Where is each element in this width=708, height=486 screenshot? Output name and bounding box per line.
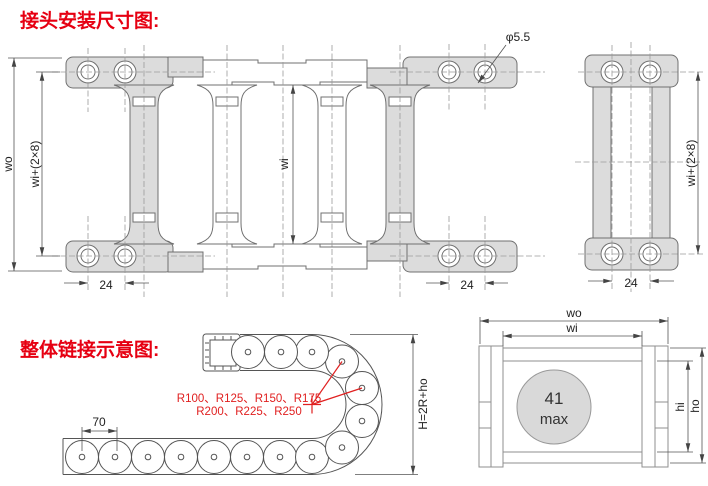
end-view-drawing: wi+(2×8) 24 (575, 42, 703, 292)
bend-radii-options-line2: R200、R225、R250 (196, 406, 301, 418)
end-view-bar-left (593, 87, 611, 238)
drag-chain-dimension-sheet: 接头安装尺寸图: 整体链接示意图: (0, 0, 708, 486)
chain-link-title: 整体链接示意图: (20, 338, 159, 361)
technical-drawing-canvas: 接头安装尺寸图: 整体链接示意图: (0, 0, 708, 486)
end-view-bar-right (652, 87, 670, 238)
cable-max-unit: max (540, 411, 569, 428)
dim-label-bend-height: H=2R+ho (416, 378, 430, 430)
bend-radii-options-line1: R100、R125、R150、R175 (177, 393, 321, 405)
section-crossbar-bottom (503, 452, 642, 463)
dim-label-end-pitch: 24 (624, 276, 638, 290)
dim-label-wi-plus: wi+(2×8) (28, 141, 42, 189)
link-snap-slots (133, 97, 411, 222)
joint-install-title: 接头安装尺寸图: (20, 9, 159, 32)
dim-label-pitch-right: 24 (460, 278, 474, 292)
dim-label-pitch-left: 24 (99, 278, 113, 292)
section-crossbar-top (503, 348, 642, 361)
section-rail-left-outer (479, 346, 491, 467)
dim-label-section-ho: ho (688, 399, 702, 413)
section-view-drawing: 41 max wo wi hi ho (479, 306, 706, 467)
bracket-bottom-left-tab (168, 252, 203, 272)
bracket-top-left-tab (168, 57, 203, 77)
dim-label-chain-pitch: 70 (92, 415, 106, 429)
dim-label-hole-diameter: φ5.5 (506, 30, 531, 44)
dim-label-section-wi: wi (565, 321, 577, 335)
cable-max-value: 41 (545, 389, 564, 408)
dimensions-section-view: wo wi hi ho (480, 306, 706, 463)
dim-label-wo: wo (1, 156, 15, 173)
top-view-drawing: wo wi+(2×8) wi 24 24 φ5.5 (1, 30, 545, 297)
section-rail-right-outer (655, 346, 668, 467)
rail-top-outer (203, 60, 367, 68)
dim-label-section-hi: hi (673, 402, 687, 411)
dim-label-section-wo: wo (565, 306, 582, 320)
rail-bottom-outer (203, 261, 367, 269)
dim-label-wi: wi (277, 158, 291, 170)
section-rail-left-inner (491, 346, 503, 467)
dim-label-end-wi-plus: wi+(2×8) (684, 140, 698, 188)
section-rail-right-inner (642, 346, 655, 467)
end-view-bracket-top (585, 55, 678, 87)
